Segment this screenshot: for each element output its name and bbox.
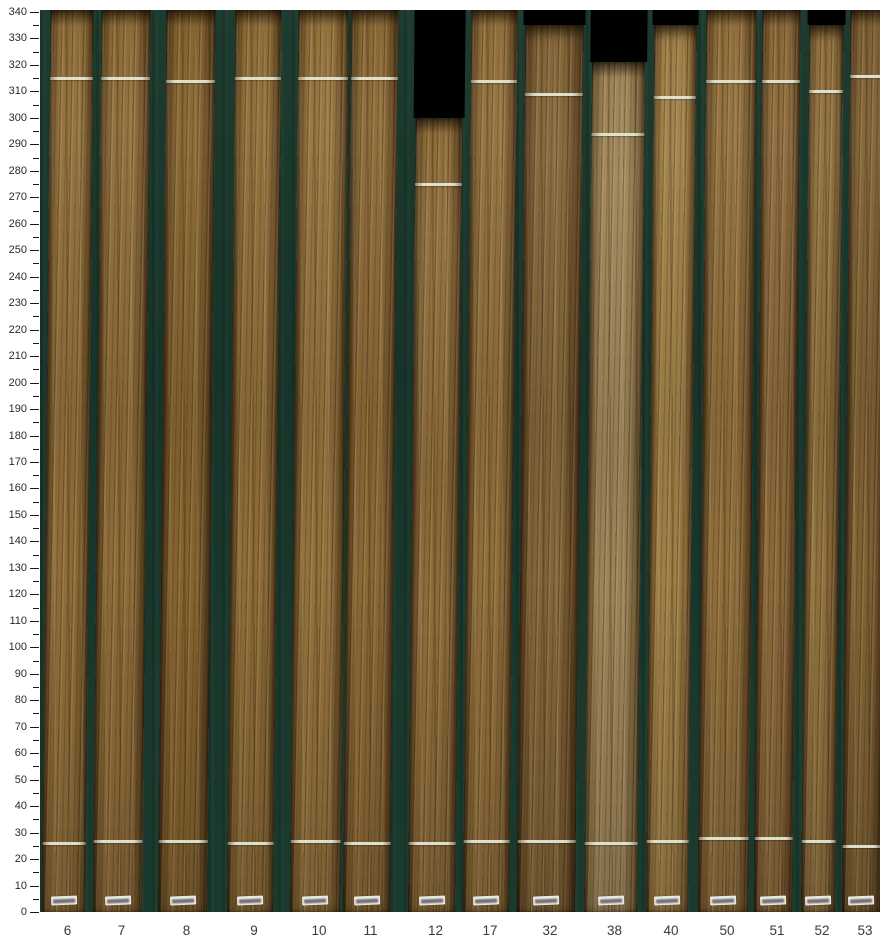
- y-axis-tick-minor: [33, 184, 39, 185]
- y-axis-tick-minor: [33, 819, 39, 820]
- specimen-tag-text: [600, 898, 622, 903]
- board-51: [754, 10, 801, 912]
- board-8: [158, 10, 216, 912]
- y-axis-tick-major: [30, 91, 39, 92]
- specimen-tag: [597, 895, 623, 905]
- y-axis-tick-major: [30, 144, 39, 145]
- specimen-tag-text: [475, 898, 497, 903]
- y-axis-tick-major: [30, 12, 39, 13]
- board-40: [646, 10, 697, 912]
- height-mark: [351, 77, 398, 80]
- y-axis-tick-minor: [33, 766, 39, 767]
- specimen-tag: [50, 895, 76, 905]
- specimen-tag-text: [850, 898, 872, 903]
- specimen-tag: [473, 895, 499, 905]
- specimen-tag-text: [535, 898, 557, 903]
- wood-strip: [158, 10, 216, 912]
- specimen-tag: [805, 895, 831, 905]
- height-mark: [843, 845, 880, 848]
- y-axis-label: 80: [0, 694, 27, 706]
- x-axis-label: 7: [102, 923, 142, 939]
- y-axis-tick-major: [30, 356, 39, 357]
- height-mark: [591, 133, 644, 136]
- y-axis-tick-minor: [33, 713, 39, 714]
- y-axis-label: 140: [0, 535, 27, 547]
- height-mark: [706, 80, 756, 83]
- specimen-tag-text: [356, 898, 378, 903]
- height-mark: [762, 80, 800, 83]
- height-mark: [518, 840, 576, 843]
- board-17: [463, 10, 518, 912]
- x-axis-label: 51: [757, 923, 797, 939]
- board-12: [408, 10, 464, 912]
- x-axis-label: 10: [299, 923, 339, 939]
- y-axis-tick-minor: [33, 25, 39, 26]
- y-axis-tick-major: [30, 409, 39, 410]
- board-11: [343, 10, 399, 912]
- y-axis-label: 330: [0, 32, 27, 44]
- y-axis-label: 70: [0, 721, 27, 733]
- y-axis-tick-minor: [33, 634, 39, 635]
- wood-strip: [290, 10, 349, 912]
- board-6: [42, 10, 94, 912]
- x-axis-label: 17: [470, 923, 510, 939]
- y-axis-tick-major: [30, 65, 39, 66]
- y-axis-label: 60: [0, 747, 27, 759]
- height-mark: [228, 842, 274, 845]
- y-axis-tick-minor: [33, 290, 39, 291]
- x-axis-label: 32: [530, 923, 570, 939]
- y-axis-tick-major: [30, 197, 39, 198]
- y-axis-label: 130: [0, 562, 27, 574]
- specimen-tag-text: [421, 898, 443, 903]
- height-mark: [464, 840, 510, 843]
- y-axis-tick-minor: [33, 105, 39, 106]
- y-axis-tick-major: [30, 806, 39, 807]
- y-axis-tick-major: [30, 436, 39, 437]
- x-axis-label: 6: [48, 923, 88, 939]
- y-axis-label: 270: [0, 191, 27, 203]
- height-mark: [298, 77, 348, 80]
- y-axis-tick-major: [30, 383, 39, 384]
- y-axis-tick-major: [30, 488, 39, 489]
- y-axis-tick-major: [30, 700, 39, 701]
- specimen-tag: [302, 895, 328, 905]
- y-axis-label: 10: [0, 880, 27, 892]
- wood-strip: [584, 62, 645, 912]
- board-53: [842, 10, 880, 912]
- height-mark: [699, 837, 749, 840]
- height-mark: [159, 840, 208, 843]
- x-axis-label: 53: [845, 923, 880, 939]
- y-axis-label: 210: [0, 350, 27, 362]
- board-52: [801, 10, 844, 912]
- x-axis-label: 50: [707, 923, 747, 939]
- y-axis-tick-minor: [33, 369, 39, 370]
- y-axis-tick-minor: [33, 475, 39, 476]
- missing-scan-cutout: [653, 10, 699, 25]
- board-50: [698, 10, 757, 912]
- y-axis-tick-major: [30, 568, 39, 569]
- y-axis-tick-minor: [33, 528, 39, 529]
- wood-strip: [754, 10, 801, 912]
- wood-strip: [408, 118, 463, 912]
- specimen-tag: [710, 895, 736, 905]
- y-axis-tick-minor: [33, 422, 39, 423]
- specimen-tag-text: [762, 898, 784, 903]
- x-axis-label: 8: [167, 923, 207, 939]
- y-axis-tick-major: [30, 780, 39, 781]
- wood-strip: [646, 25, 697, 912]
- y-axis-tick-minor: [33, 158, 39, 159]
- specimen-tag-text: [53, 898, 75, 903]
- height-mark: [850, 75, 880, 78]
- x-axis-label: 40: [651, 923, 691, 939]
- x-axis-label: 9: [234, 923, 274, 939]
- y-axis-tick-minor: [33, 316, 39, 317]
- height-mark: [415, 183, 462, 186]
- y-axis-tick-major: [30, 303, 39, 304]
- y-axis-tick-major: [30, 753, 39, 754]
- y-axis-tick-major: [30, 727, 39, 728]
- y-axis-tick-major: [30, 594, 39, 595]
- specimen-tag: [760, 895, 786, 905]
- y-axis-tick-major: [30, 462, 39, 463]
- y-axis-tick-major: [30, 621, 39, 622]
- y-axis-label: 120: [0, 588, 27, 600]
- y-axis-label: 110: [0, 615, 27, 627]
- y-axis-tick-minor: [33, 131, 39, 132]
- y-axis-label: 190: [0, 403, 27, 415]
- x-axis-label: 12: [416, 923, 456, 939]
- missing-scan-cutout: [808, 10, 846, 25]
- x-axis-label: 11: [351, 923, 391, 939]
- height-mark: [809, 90, 843, 93]
- board-10: [290, 10, 349, 912]
- y-axis-tick-major: [30, 912, 39, 913]
- y-axis-label: 160: [0, 482, 27, 494]
- y-axis-tick-minor: [33, 846, 39, 847]
- y-axis-label: 250: [0, 244, 27, 256]
- y-axis-label: 260: [0, 218, 27, 230]
- specimen-tag-text: [807, 898, 829, 903]
- missing-scan-cutout: [414, 10, 466, 118]
- y-axis-label: 280: [0, 165, 27, 177]
- missing-scan-cutout: [590, 10, 647, 62]
- y-axis-label: 150: [0, 509, 27, 521]
- y-axis-tick-minor: [33, 687, 39, 688]
- height-mark: [585, 842, 638, 845]
- wood-strip: [517, 25, 584, 912]
- y-axis-label: 340: [0, 6, 27, 18]
- specimen-tag-text: [712, 898, 734, 903]
- y-axis-tick-major: [30, 250, 39, 251]
- y-axis-tick-minor: [33, 211, 39, 212]
- y-axis-tick-major: [30, 38, 39, 39]
- y-axis-label: 220: [0, 324, 27, 336]
- y-axis-tick-minor: [33, 740, 39, 741]
- y-axis-label: 100: [0, 641, 27, 653]
- specimen-tag: [353, 895, 379, 905]
- y-axis-label: 180: [0, 430, 27, 442]
- height-mark: [647, 840, 689, 843]
- y-axis-label: 320: [0, 59, 27, 71]
- wood-strip: [343, 10, 399, 912]
- y-axis-tick-minor: [33, 555, 39, 556]
- y-axis-tick-minor: [33, 237, 39, 238]
- y-axis-tick-major: [30, 859, 39, 860]
- height-mark: [101, 77, 150, 80]
- height-mark: [654, 96, 696, 99]
- y-axis-tick-minor: [33, 263, 39, 264]
- height-mark: [471, 80, 517, 83]
- wood-strip: [698, 10, 757, 912]
- height-mark: [235, 77, 281, 80]
- y-axis-tick-major: [30, 833, 39, 834]
- y-axis-tick-major: [30, 224, 39, 225]
- specimen-tag: [169, 895, 195, 905]
- y-axis-label: 290: [0, 138, 27, 150]
- y-axis-tick-minor: [33, 502, 39, 503]
- y-axis-label: 170: [0, 456, 27, 468]
- wood-strip: [42, 10, 94, 912]
- height-mark: [802, 840, 836, 843]
- height-mark: [94, 840, 143, 843]
- y-axis-label: 310: [0, 85, 27, 97]
- board-9: [227, 10, 282, 912]
- y-axis-label: 0: [0, 906, 27, 918]
- y-axis-label: 20: [0, 853, 27, 865]
- height-mark: [43, 842, 86, 845]
- y-axis-label: 90: [0, 668, 27, 680]
- y-axis-label: 230: [0, 297, 27, 309]
- y-axis-tick-minor: [33, 449, 39, 450]
- figure-page: 0102030405060708090100110120130140150160…: [0, 0, 880, 950]
- y-axis-tick-minor: [33, 343, 39, 344]
- y-axis-label: 40: [0, 800, 27, 812]
- specimen-tag-text: [172, 898, 194, 903]
- y-axis-tick-minor: [33, 78, 39, 79]
- height-mark: [344, 842, 391, 845]
- height-mark: [409, 842, 456, 845]
- y-axis-label: 300: [0, 112, 27, 124]
- height-mark: [291, 840, 341, 843]
- y-axis-tick-minor: [33, 872, 39, 873]
- y-axis-tick-minor: [33, 581, 39, 582]
- y-axis-label: 200: [0, 377, 27, 389]
- y-axis-tick-major: [30, 515, 39, 516]
- specimen-tag: [848, 895, 874, 905]
- y-axis-tick-major: [30, 277, 39, 278]
- specimen-tag-text: [107, 898, 129, 903]
- specimen-tag-text: [304, 898, 326, 903]
- board-7: [93, 10, 151, 912]
- y-axis-tick-major: [30, 647, 39, 648]
- y-axis-tick-major: [30, 171, 39, 172]
- y-axis-tick-major: [30, 886, 39, 887]
- y-axis-tick-major: [30, 674, 39, 675]
- y-axis-tick-major: [30, 118, 39, 119]
- wood-strip: [93, 10, 151, 912]
- y-axis-label: 50: [0, 774, 27, 786]
- specimen-tag-text: [656, 898, 678, 903]
- wood-strip: [463, 10, 518, 912]
- y-axis-tick-minor: [33, 899, 39, 900]
- board-38: [584, 10, 646, 912]
- y-axis-tick-minor: [33, 793, 39, 794]
- y-axis-tick-major: [30, 541, 39, 542]
- specimen-tag: [533, 895, 559, 905]
- specimen-tag-text: [239, 898, 261, 903]
- figure-plot-area: [40, 10, 880, 912]
- specimen-tag: [237, 895, 263, 905]
- height-mark: [755, 837, 793, 840]
- specimen-tag: [104, 895, 130, 905]
- height-mark: [166, 80, 215, 83]
- y-axis-tick-minor: [33, 608, 39, 609]
- height-mark: [525, 93, 583, 96]
- x-axis-label: 38: [595, 923, 635, 939]
- specimen-tag: [654, 895, 680, 905]
- x-axis-label: 52: [802, 923, 842, 939]
- y-axis-label: 240: [0, 271, 27, 283]
- board-32: [517, 10, 584, 912]
- y-axis-label: 30: [0, 827, 27, 839]
- missing-scan-cutout: [524, 10, 586, 25]
- height-mark: [50, 77, 93, 80]
- y-axis-tick-minor: [33, 396, 39, 397]
- specimen-tag: [418, 895, 444, 905]
- wood-strip: [801, 25, 844, 912]
- wood-strip: [842, 10, 880, 912]
- y-axis-tick-minor: [33, 52, 39, 53]
- y-axis-tick-major: [30, 330, 39, 331]
- y-axis-tick-minor: [33, 661, 39, 662]
- wood-strip: [227, 10, 282, 912]
